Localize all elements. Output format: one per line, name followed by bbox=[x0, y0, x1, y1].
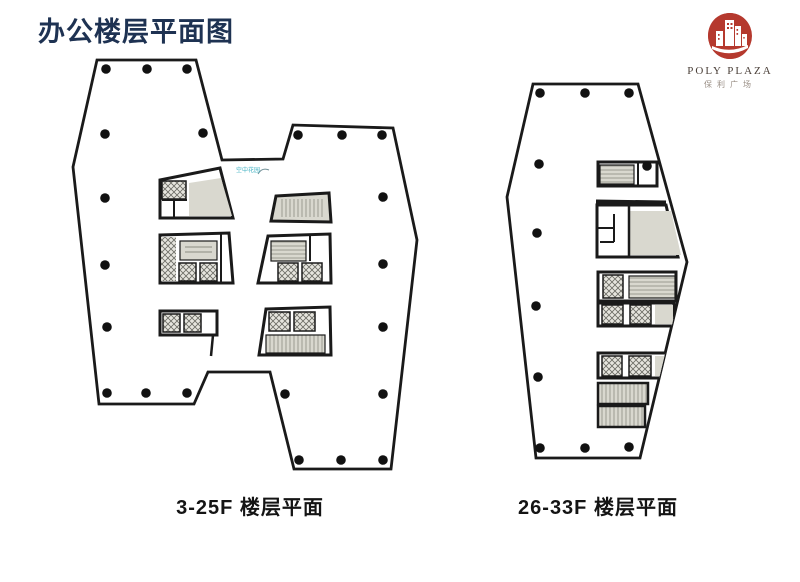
caption-plan-3-25f: 3-25F 楼层平面 bbox=[130, 491, 370, 520]
floor-plan-26-33f bbox=[507, 84, 687, 458]
plan-a-outline bbox=[73, 60, 417, 469]
plan-a-annotation: 空中花园 bbox=[236, 168, 260, 174]
caption-plan-26-33f: 26-33F 楼层平面 bbox=[478, 491, 718, 520]
floor-plan-3-25f bbox=[73, 60, 417, 469]
